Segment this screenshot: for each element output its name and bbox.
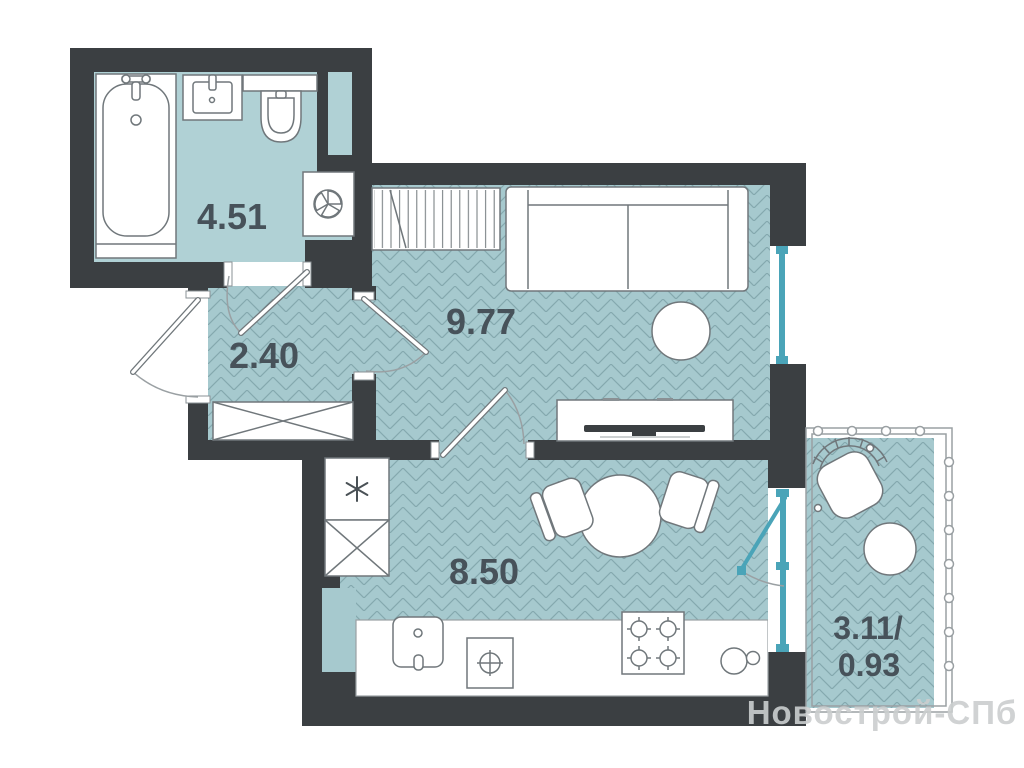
tv-stand <box>557 398 733 441</box>
floor-plan: 4.51 2.40 9.77 8.50 3.11/ 0.93 Новострой… <box>0 0 1024 768</box>
balcony-table <box>864 523 916 575</box>
balcony-area-label-reduced: 0.93 <box>838 647 900 683</box>
kitchen-area-label: 8.50 <box>449 551 519 592</box>
hallway-area-label: 2.40 <box>229 335 299 376</box>
floor-plan-canvas: 4.51 2.40 9.77 8.50 3.11/ 0.93 Новострой… <box>0 0 1024 768</box>
stove <box>622 612 684 674</box>
entrance-door <box>133 291 210 403</box>
living-room-window <box>770 246 806 364</box>
hall-wardrobe <box>213 402 353 440</box>
tall-cabinet <box>325 520 389 576</box>
bathroom-area-label: 4.51 <box>197 196 267 237</box>
hob <box>467 638 513 688</box>
side-table <box>652 302 710 360</box>
bathroom-niche <box>328 74 353 155</box>
bathtub <box>96 74 176 258</box>
balcony-area-label-total: 3.11/ <box>833 610 903 646</box>
living-room-area-label: 9.77 <box>446 301 516 342</box>
closet <box>372 188 500 250</box>
washbasin <box>183 75 242 120</box>
kitchen-sink <box>393 617 443 670</box>
vent-shaft <box>322 588 356 672</box>
watermark: Новострой-СПб <box>747 694 1018 731</box>
fridge <box>325 458 389 520</box>
tv <box>584 425 705 432</box>
washing-machine <box>303 172 354 236</box>
sofa <box>506 187 748 291</box>
